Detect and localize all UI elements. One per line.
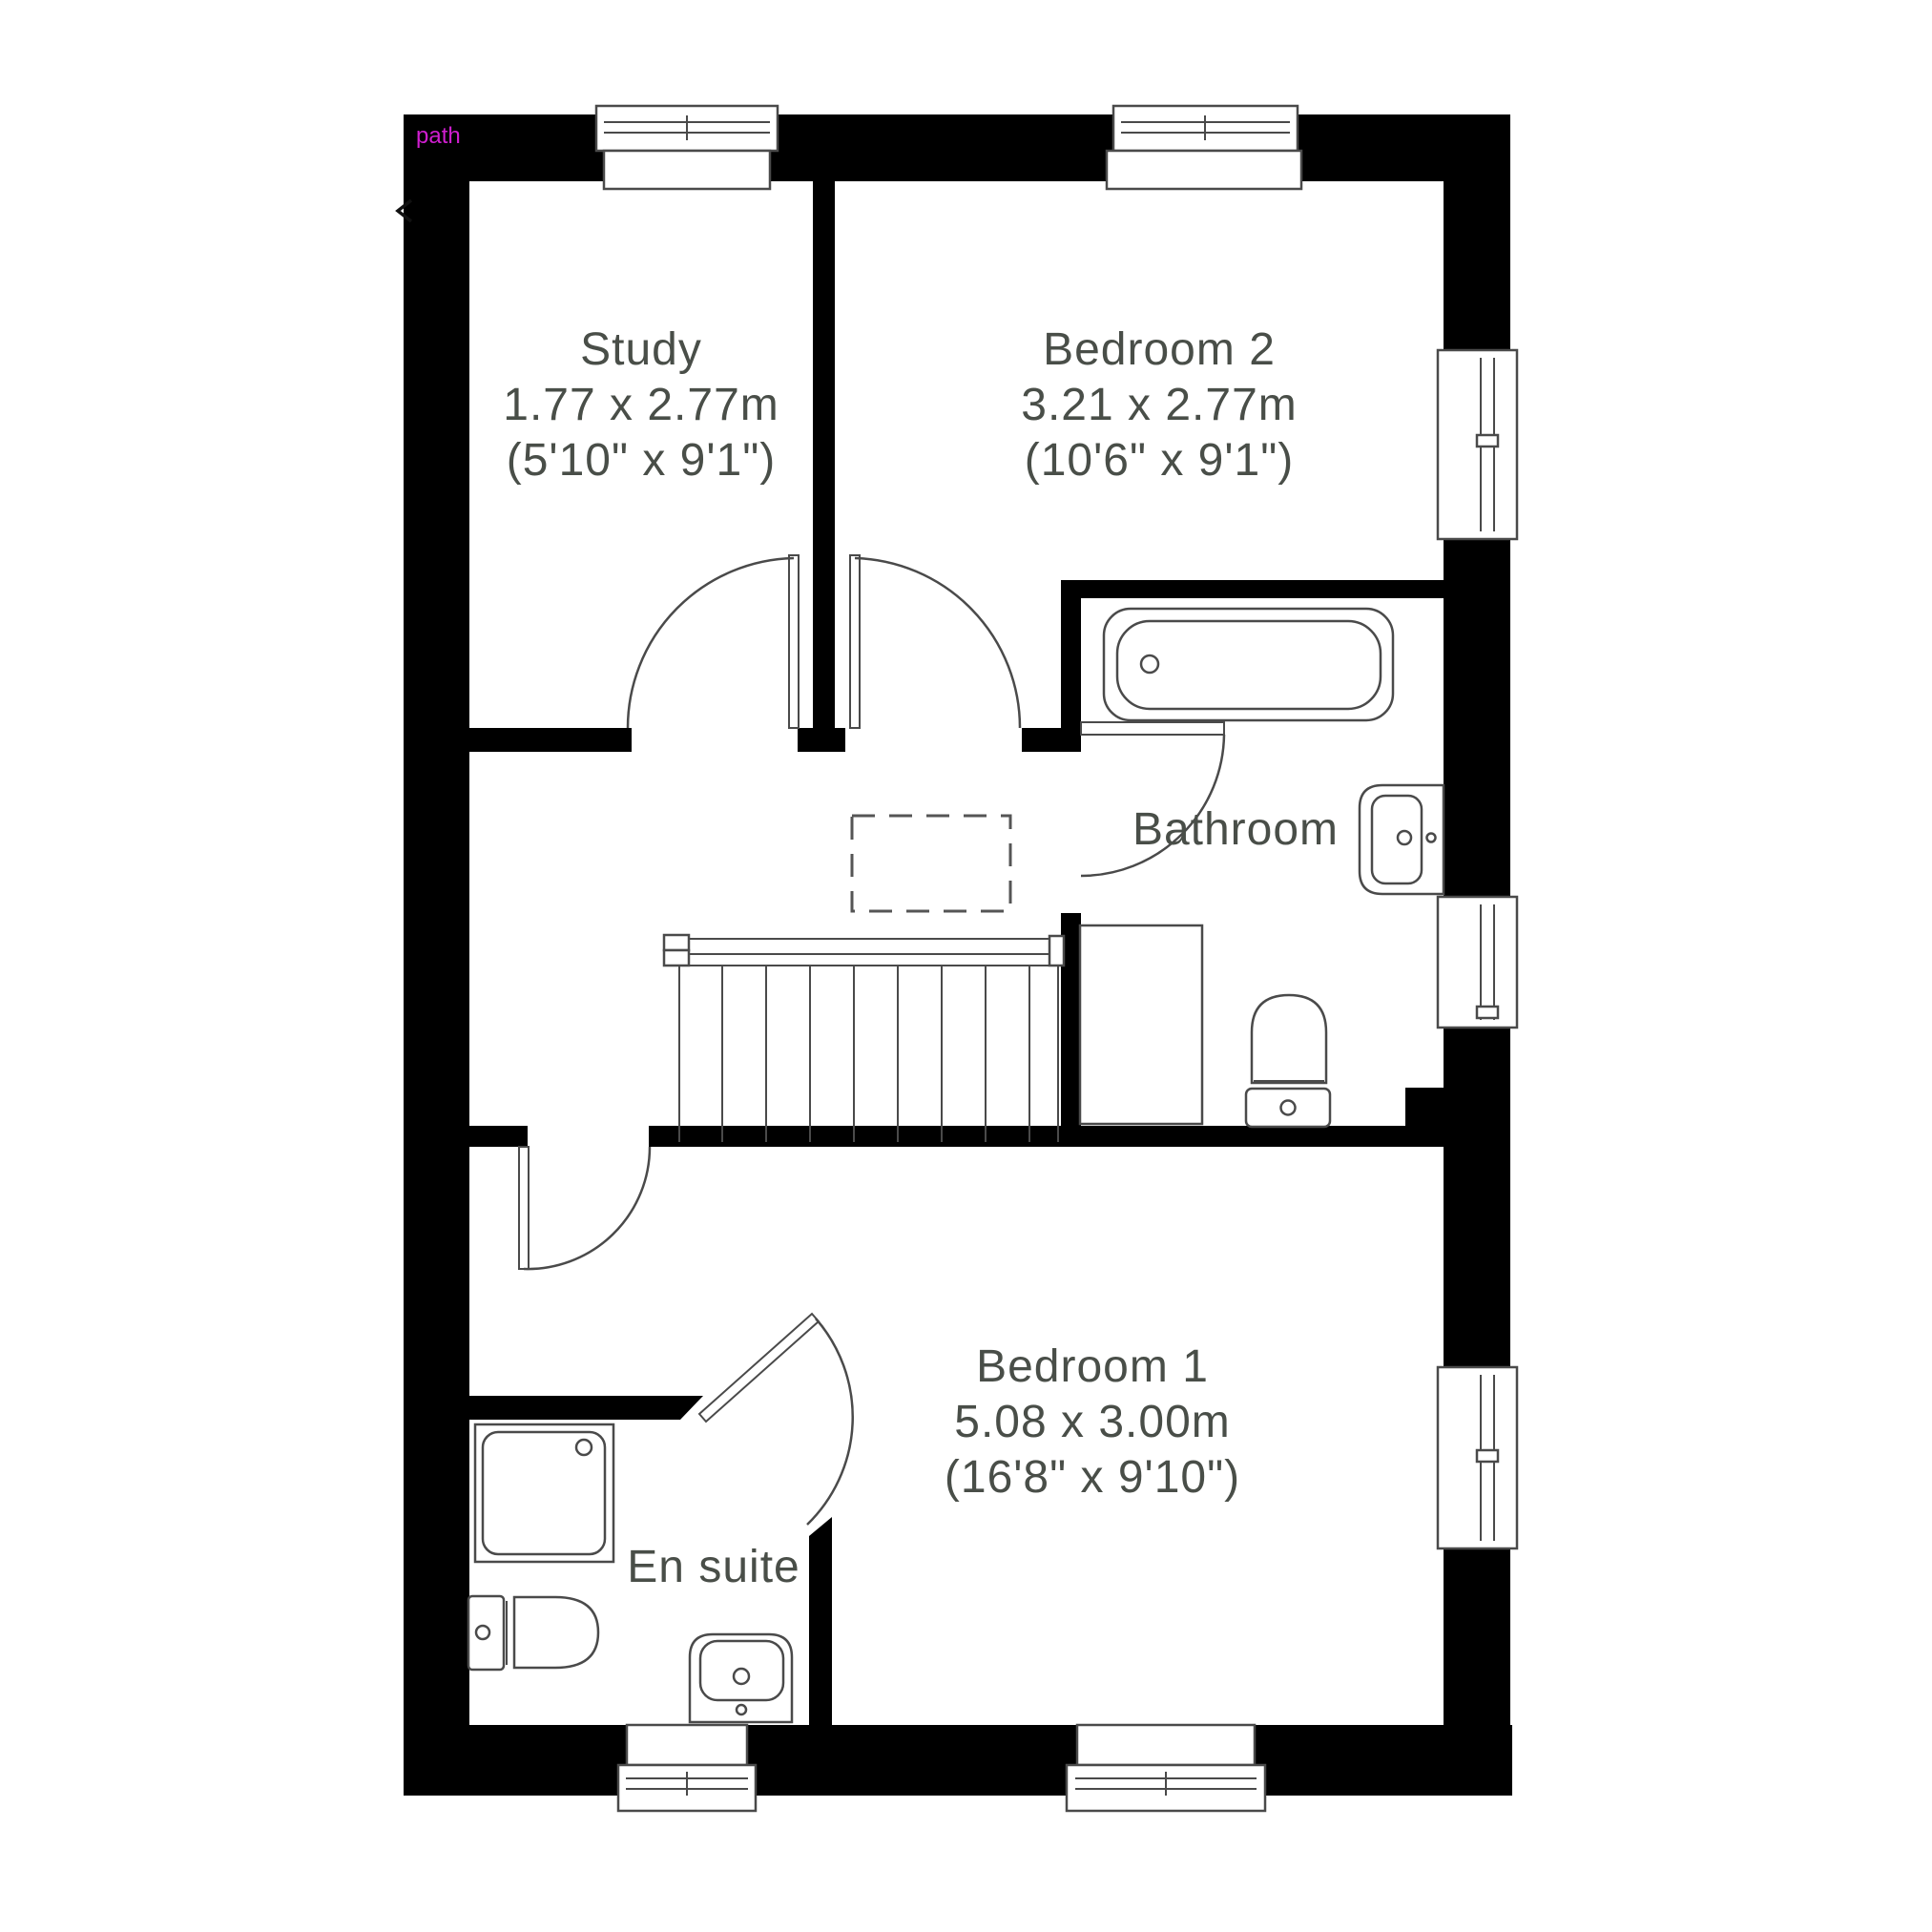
ensuite-toilet (468, 1596, 598, 1670)
stair-newel-post (664, 950, 689, 966)
wall-study-bedroom2 (813, 181, 835, 750)
door-study (628, 555, 799, 728)
bedroom2-name: Bedroom 2 (1043, 324, 1276, 375)
room-label-bedroom2: Bedroom 2 3.21 x 2.77m (10'6" x 9'1") (1021, 324, 1298, 486)
wall-bedroom1-top-stub (469, 1126, 528, 1147)
room-label-bathroom: Bathroom (1132, 804, 1339, 855)
stair-rail-end-post (1049, 936, 1064, 966)
wall-exterior-bottom (404, 1725, 1512, 1796)
bedroom1-size-metric: 5.08 x 3.00m (954, 1397, 1231, 1447)
staircase (664, 935, 1064, 1142)
floor-plan-page: Study 1.77 x 2.77m (5'10" x 9'1") Bedroo… (0, 0, 1932, 1932)
wall-ensuite-top (469, 1396, 703, 1420)
wall-pier-right (1405, 1088, 1444, 1147)
path-label: path (416, 123, 461, 149)
bedroom1-size-imperial: (16'8" x 9'10") (945, 1452, 1240, 1503)
bathroom-name: Bathroom (1132, 804, 1339, 855)
door-bedroom1 (519, 1147, 650, 1269)
bathtub (1104, 609, 1393, 720)
bedroom1-name: Bedroom 1 (976, 1341, 1209, 1392)
wall-exterior-top (404, 114, 1510, 181)
wall-exterior-left (404, 114, 469, 1796)
stair-newel-post (664, 935, 689, 950)
wall-ensuite-right (809, 1517, 832, 1727)
window-ensuite-bottom (618, 1725, 756, 1811)
bedroom2-size-metric: 3.21 x 2.77m (1021, 380, 1298, 430)
wall-door-stub (798, 728, 845, 752)
wall-bathroom-top (1061, 580, 1444, 598)
window-bedroom2-right (1438, 350, 1517, 539)
stair-treads (679, 966, 1058, 1142)
room-label-bedroom1: Bedroom 1 5.08 x 3.00m (16'8" x 9'10") (945, 1341, 1240, 1503)
ensuite-name: En suite (627, 1542, 800, 1592)
window-bedroom1-right (1438, 1367, 1517, 1548)
room-label-study: Study 1.77 x 2.77m (5'10" x 9'1") (503, 324, 779, 486)
study-name: Study (580, 324, 702, 375)
study-size-imperial: (5'10" x 9'1") (507, 435, 777, 486)
bathroom-sink (1360, 785, 1444, 894)
wall-bedroom1-top (649, 1126, 1405, 1147)
floor-plan: Study 1.77 x 2.77m (5'10" x 9'1") Bedroo… (0, 0, 1932, 1932)
shower (475, 1424, 613, 1562)
loft-hatch-dashed (852, 816, 1010, 911)
ensuite-sink (690, 1634, 792, 1722)
bedroom2-size-imperial: (10'6" x 9'1") (1025, 435, 1295, 486)
airing-cupboard (1080, 925, 1202, 1124)
door-bedroom2 (850, 555, 1020, 728)
door-ensuite (699, 1314, 853, 1525)
bathroom-toilet (1246, 995, 1330, 1127)
bathroom-fixtures (1080, 609, 1444, 1127)
window-bedroom1-bottom (1067, 1725, 1265, 1811)
window-bathroom (1438, 897, 1517, 1028)
window-bedroom2-top (1107, 106, 1301, 189)
room-label-ensuite: En suite (627, 1542, 800, 1592)
window-study (596, 106, 778, 189)
wall-bathroom-left-upper (1061, 580, 1081, 752)
study-size-metric: 1.77 x 2.77m (503, 380, 779, 430)
wall-landing-study (469, 728, 632, 752)
